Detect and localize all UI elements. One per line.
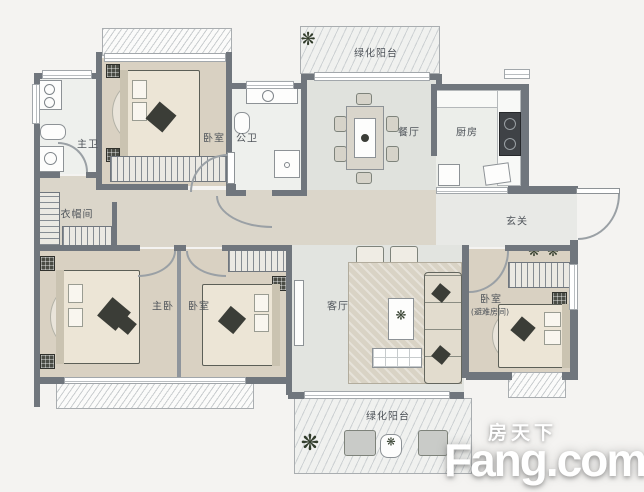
label-balcony-top: 绿化阳台 (354, 45, 398, 60)
floor-plan: ❋ ❋ ❋ ❋ ❋ ❋ (0, 0, 644, 492)
closet-shelf (62, 226, 112, 246)
centerpiece-icon (361, 134, 369, 142)
label-living-room: 客厅 (327, 298, 349, 313)
dining-chair (386, 146, 399, 162)
washer-drum-icon (44, 97, 55, 108)
dining-chair (356, 93, 372, 105)
window (504, 69, 530, 79)
watermark: 房天下 Fang.com (444, 418, 644, 483)
closet-shelf (38, 192, 60, 246)
door-leaf (227, 152, 235, 184)
window (569, 264, 578, 310)
corridor-floor (100, 190, 465, 247)
label-bedroom-top: 卧室 (203, 130, 225, 145)
wall-segment (86, 172, 102, 178)
wall-segment (521, 84, 529, 193)
window (42, 70, 92, 79)
bedroom-top-bay-window (102, 28, 232, 56)
label-master-bath: 主卫 (77, 136, 99, 151)
wall-segment (431, 84, 437, 156)
plant-icon: ❋ (300, 31, 315, 49)
stove (499, 112, 521, 156)
bed-headboard (562, 304, 570, 368)
plant-icon: ❋ (396, 310, 407, 323)
drain-icon (284, 162, 290, 168)
label-master-bedroom: 主卧 (152, 298, 174, 313)
label-dining-room: 餐厅 (398, 124, 420, 139)
wall-segment (286, 245, 292, 395)
label-second-bedroom: 卧室 (188, 298, 210, 313)
nightstand (40, 256, 55, 271)
tv-cabinet (294, 280, 304, 346)
pillow (544, 312, 561, 327)
wall-segment (34, 245, 140, 251)
bed-headboard (272, 284, 280, 366)
balcony-door-window (314, 72, 430, 81)
window (32, 84, 40, 124)
nightstand (40, 354, 55, 369)
sink-basin-icon (44, 152, 57, 165)
wardrobe (508, 262, 570, 288)
wall-segment (34, 172, 60, 178)
refuge-bedroom-window (508, 372, 566, 398)
dining-chair (356, 172, 372, 184)
kitchen-sliding-door (436, 187, 508, 194)
wall-segment (505, 245, 571, 251)
wall-segment (466, 372, 512, 380)
pillow (132, 80, 147, 99)
toilet (40, 124, 66, 140)
balcony-door-window (304, 391, 450, 399)
label-refuge-bedroom-sub: (避难房间) (471, 307, 509, 318)
wall-segment (96, 184, 188, 190)
pillow (254, 314, 269, 332)
bed-headboard (56, 270, 64, 364)
label-kitchen: 厨房 (456, 124, 478, 139)
bedrooms-bay-window (56, 383, 254, 409)
wall-segment (570, 240, 578, 266)
wall-segment (508, 186, 578, 194)
pillow (254, 294, 269, 312)
side-table (372, 348, 422, 368)
label-refuge-bedroom: 卧室 (480, 291, 502, 306)
wardrobe (228, 250, 292, 272)
wall-segment (448, 392, 464, 399)
plant-icon: ❋ (386, 437, 395, 448)
entrance-door-arc (578, 194, 620, 240)
label-public-bath: 公卫 (236, 130, 258, 145)
wall-segment (562, 372, 578, 380)
label-foyer: 玄关 (506, 213, 528, 228)
plant-icon: ❋ (301, 433, 319, 455)
wall-segment (112, 202, 117, 245)
label-balcony-bottom: 绿化阳台 (366, 408, 410, 423)
window (104, 53, 226, 62)
wall-segment (436, 84, 528, 90)
window (246, 81, 294, 89)
wall-segment (96, 52, 102, 190)
fridge (438, 164, 460, 186)
watermark-site-name-en: Fang.com (444, 439, 644, 483)
wall-segment (222, 245, 292, 251)
balcony-chair (344, 430, 376, 456)
label-closet: 衣帽间 (61, 206, 94, 221)
sink-basin-icon (262, 90, 274, 102)
pillow (68, 284, 83, 303)
wall-segment (570, 308, 578, 376)
bedroom-divider-wall (177, 251, 181, 377)
wall-segment (301, 74, 307, 196)
pillow (68, 308, 83, 327)
window (64, 377, 246, 384)
pillow (544, 330, 561, 345)
bed-headboard (120, 70, 128, 162)
wall-segment (272, 190, 307, 196)
wall-segment (462, 251, 469, 378)
kitchen-sink (483, 162, 512, 185)
nightstand (106, 64, 120, 78)
washer-drum-icon (44, 84, 55, 95)
